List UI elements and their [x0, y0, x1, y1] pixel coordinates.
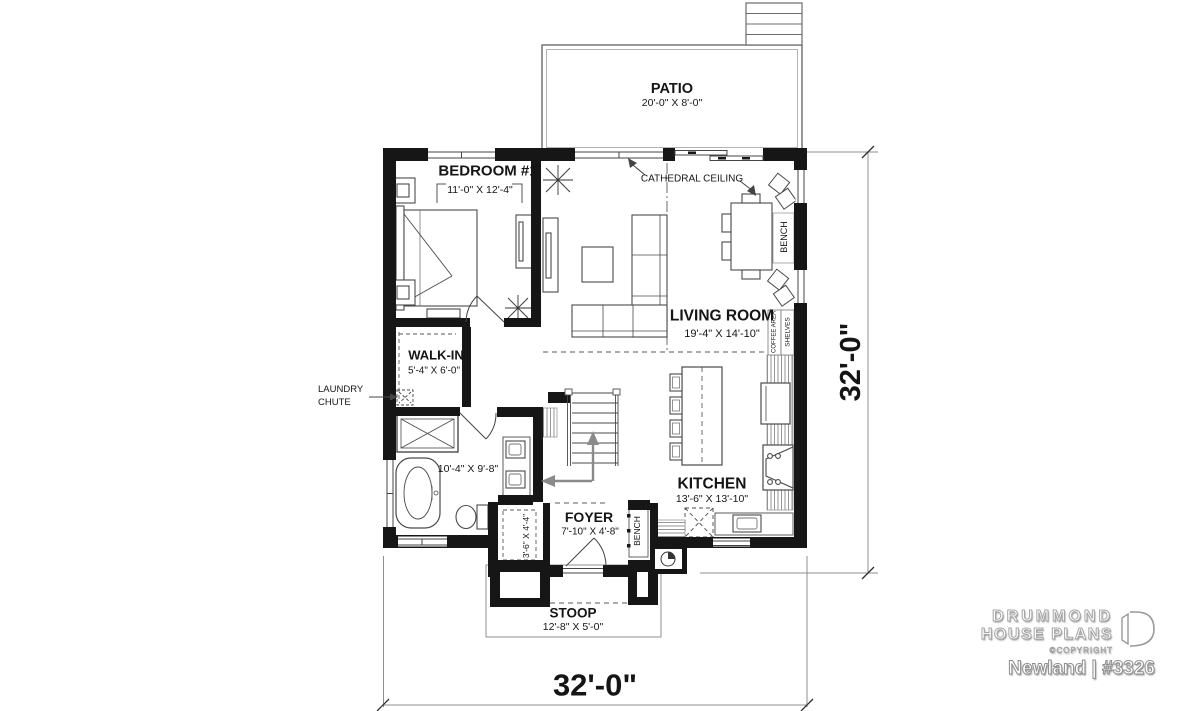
bedroom1-name: BEDROOM #1: [438, 164, 537, 181]
brand-name-line1: DRUMMOND: [992, 608, 1113, 626]
bath-size: 10'-4" X 9'-8": [438, 464, 499, 476]
kitchen-sink-icon: [715, 513, 793, 535]
bench-dining-label: BENCH: [779, 221, 789, 253]
window-bath-left: [385, 460, 395, 527]
patio-name: PATIO: [651, 81, 693, 97]
floor-plan: PATIO 20'-0" X 8'-0" BEDROOM #1 11'-0" X…: [0, 0, 1200, 711]
patio-steps-icon: [746, 3, 802, 45]
linen-shelves: [543, 408, 557, 437]
walkin-name: WALK-IN: [408, 349, 464, 364]
front-door-sill: [563, 566, 603, 576]
bathroom-door-icon: [460, 413, 496, 439]
bench-foyer-label: BENCH: [633, 516, 643, 546]
brand-logo-icon: [1122, 612, 1154, 646]
kitchen-island-icon: [670, 367, 722, 465]
window-living-right: [796, 270, 806, 303]
coffee-table-icon: [582, 247, 613, 282]
overall-width-dim: 32'-0": [553, 669, 637, 704]
window-bath-bottom: [398, 537, 447, 547]
pantry-icon: [685, 508, 713, 537]
sliding-patio-door: [675, 149, 763, 161]
toilet-icon: [456, 505, 488, 529]
front-door-icon: [566, 538, 606, 566]
foyer-size: 7'-10" X 4'-8": [561, 526, 619, 537]
cathedral-ceiling-label: CATHEDRAL CEILING: [641, 173, 743, 184]
window-dining-right: [796, 170, 806, 203]
floor-plan-linework: [0, 0, 1200, 711]
shelves-label: SHELVES: [784, 317, 791, 347]
closet-size: 3'-6" X 4'-4": [522, 514, 532, 558]
window-bedroom-top: [428, 150, 495, 160]
brand-name-line2: HOUSE PLANS: [981, 626, 1113, 644]
plan-name-number: Newland | #3326: [1008, 658, 1155, 680]
shower-icon: [397, 415, 458, 452]
walkin-size: 5'-4" X 6'-0": [408, 365, 460, 376]
bedroom1-size: 11'-0" X 12'-4": [447, 185, 513, 197]
range-icon: [763, 445, 793, 490]
window-kitchen-bottom: [713, 539, 750, 547]
brand-copyright: ©COPYRIGHT: [1050, 646, 1113, 655]
dining-table-icon: [722, 194, 772, 279]
stoop-name: STOOP: [549, 605, 596, 620]
coffee-area-label: COFFEE AREA: [771, 311, 778, 353]
stoop-column-icon: [661, 552, 675, 566]
stool-icon: [670, 374, 682, 460]
bedroom-furniture: [393, 178, 532, 318]
stoop-size: 12'-8" X 5'-0": [543, 622, 604, 634]
patio-outline: [542, 3, 802, 152]
window-patio-top: [575, 150, 663, 160]
patio-size: 20'-0" X 8'-0": [642, 98, 703, 110]
kitchen-size: 13'-6" X 13'-10": [676, 494, 748, 506]
stair-direction-arrows: [541, 431, 599, 487]
overall-depth-dim: 32'-0": [835, 323, 867, 402]
vanity-icon: [503, 437, 530, 500]
foyer-name: FOYER: [565, 510, 613, 526]
laundry-chute-label-1: LAUNDRY: [318, 384, 363, 395]
bathtub-icon: [396, 458, 440, 528]
tv-console-icon: [543, 218, 558, 292]
kitchen-name: KITCHEN: [678, 475, 747, 492]
refrigerator-icon: [761, 383, 790, 424]
laundry-chute-label-2: CHUTE: [318, 397, 351, 408]
living-name: LIVING ROOM: [670, 307, 774, 324]
stairs-icon: [541, 389, 620, 487]
living-size: 19'-4" X 14'-10": [684, 328, 760, 340]
